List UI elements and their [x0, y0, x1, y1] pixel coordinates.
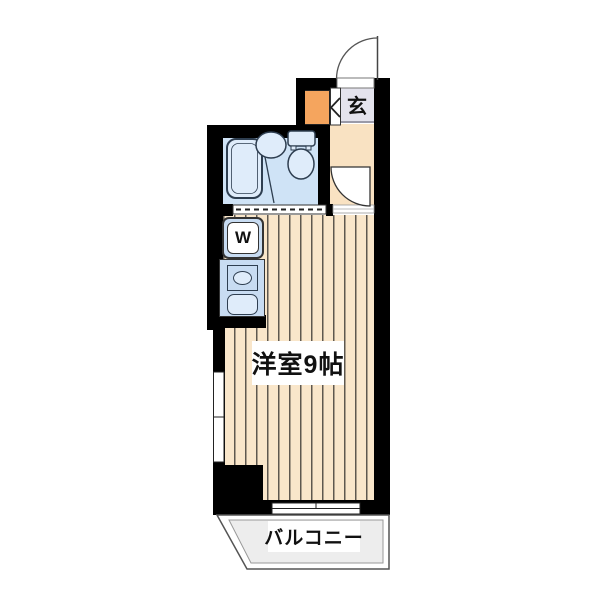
wall-segment [296, 78, 305, 125]
kitchen-unit [219, 259, 265, 317]
wall-segment [207, 125, 330, 138]
balcony-label: バルコニー [268, 521, 360, 552]
entrance-door-arc [337, 38, 378, 79]
wall-segment [318, 125, 330, 207]
stove-burner [233, 271, 252, 285]
floorplan-canvas: 玄 W [0, 0, 600, 600]
folding-door-symbol [331, 98, 340, 117]
genkan-step-line [341, 121, 374, 123]
hallway-floor [330, 124, 374, 206]
wall-segment [263, 500, 390, 515]
wall-segment [374, 78, 390, 515]
entrance-threshold [337, 78, 374, 88]
shoe-cabinet [304, 90, 330, 125]
unit-bath-floor [222, 137, 318, 205]
kitchen-sink [227, 294, 258, 315]
doorway-opening [333, 205, 374, 213]
accordion-door [233, 205, 326, 214]
wall-segment [326, 204, 333, 216]
genkan-label: 玄 [347, 90, 368, 119]
washing-machine-box: W [222, 217, 264, 259]
main-room-label: 洋室9帖 [252, 341, 344, 385]
pillar [213, 465, 263, 515]
washing-machine-label: W [227, 222, 259, 254]
stove [227, 265, 258, 291]
wall-segment [207, 204, 233, 216]
folding-door-strip [331, 88, 341, 125]
genkan-floor: 玄 [341, 88, 374, 121]
